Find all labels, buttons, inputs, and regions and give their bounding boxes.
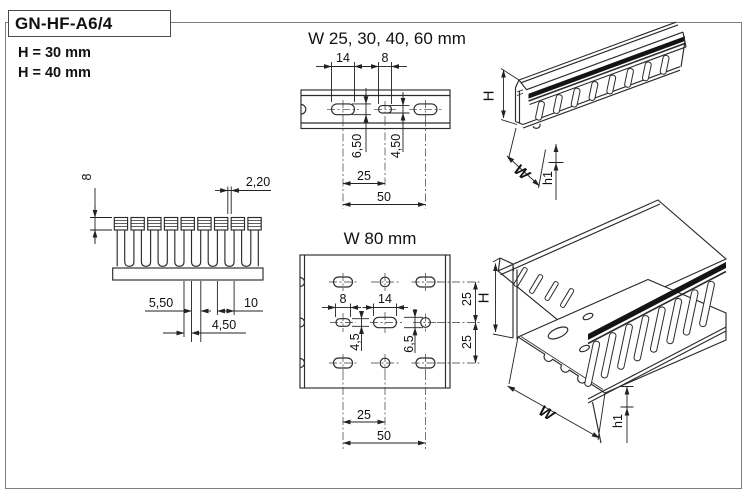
dim-label: 25 <box>460 335 474 349</box>
dim-label: 8 <box>80 174 94 181</box>
duct-open-3d-drawing <box>493 200 726 443</box>
dim-label-foot: h1 <box>541 171 555 185</box>
dim-label: 14 <box>378 292 392 306</box>
dim-label: 4,50 <box>212 318 236 332</box>
dim-label: 8 <box>340 292 347 306</box>
dim-label-foot: h1 <box>611 414 625 428</box>
variant-h40: H = 40 mm <box>18 65 91 81</box>
dim-label: 50 <box>377 429 391 443</box>
dim-label: 6,50 <box>350 134 364 158</box>
plate-title: W 80 mm <box>344 229 417 249</box>
dim-label: 25 <box>357 408 371 422</box>
product-title-box: GN-HF-A6/4 <box>8 10 171 37</box>
dim-label: 2,20 <box>246 175 270 189</box>
dim-label-height: H <box>481 91 498 102</box>
dim-label: 50 <box>377 190 391 204</box>
variant-h30: H = 30 mm <box>18 45 91 61</box>
product-code: GN-HF-A6/4 <box>9 11 170 36</box>
mounting-holes-w80-drawing <box>300 255 481 449</box>
dim-label: 4,50 <box>389 134 403 158</box>
dim-label: 10 <box>244 296 258 310</box>
dim-label: 25 <box>460 292 474 306</box>
dim-label: 6,5 <box>402 335 416 352</box>
dim-label: 25 <box>357 169 371 183</box>
strip-title: W 25, 30, 40, 60 mm <box>308 29 466 49</box>
dim-label: 8 <box>382 51 389 65</box>
dim-label: 5,50 <box>149 296 173 310</box>
dim-label: 4,5 <box>348 333 362 350</box>
catalog-drawing-page: GN-HF-A6/4 H = 30 mm H = 40 mm W 25, 30,… <box>0 0 754 496</box>
dim-label-height: H <box>476 293 493 304</box>
slot-pitch-profile-drawing <box>90 187 271 343</box>
mounting-holes-strip-drawing <box>301 62 450 209</box>
dim-label: 14 <box>336 51 350 65</box>
